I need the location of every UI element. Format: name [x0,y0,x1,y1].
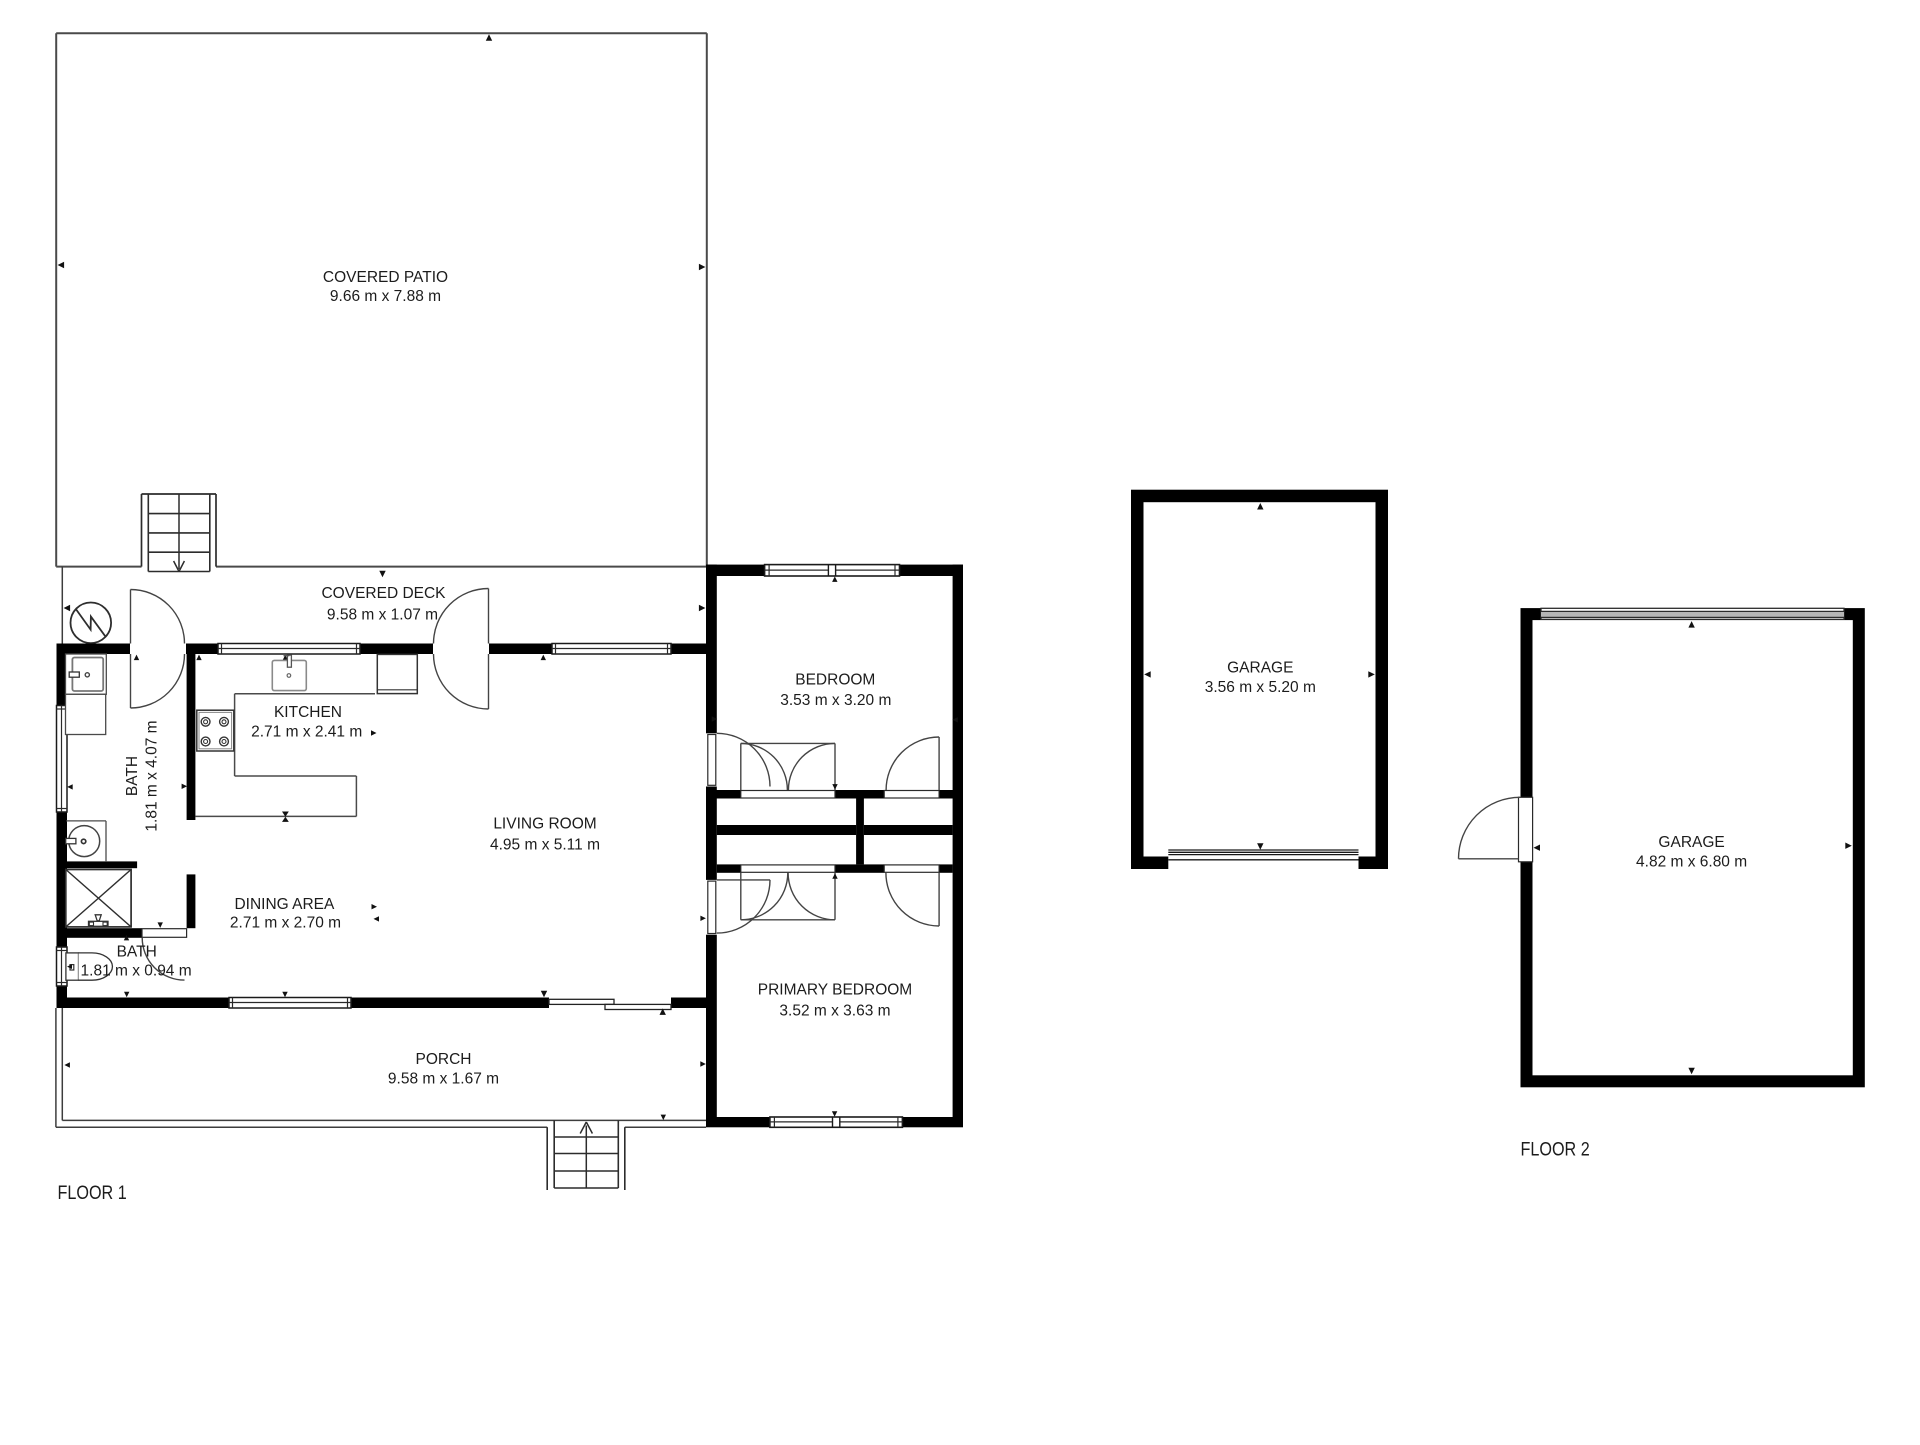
svg-text:PRIMARY BEDROOM: PRIMARY BEDROOM [758,982,912,999]
svg-text:BATH: BATH [117,944,157,961]
svg-text:FLOOR 2: FLOOR 2 [1521,1138,1590,1160]
svg-text:LIVING ROOM: LIVING ROOM [493,816,596,833]
svg-text:COVERED PATIO: COVERED PATIO [323,269,448,286]
svg-text:KITCHEN: KITCHEN [274,704,342,721]
svg-text:4.82 m x 6.80 m: 4.82 m x 6.80 m [1636,854,1747,871]
svg-text:GARAGE: GARAGE [1227,660,1293,677]
svg-text:2.71 m x 2.70 m: 2.71 m x 2.70 m [230,915,341,932]
svg-text:1.81 m x 4.07 m: 1.81 m x 4.07 m [143,720,160,831]
svg-text:FLOOR 1: FLOOR 1 [58,1182,127,1204]
svg-text:9.58 m x 1.67 m: 9.58 m x 1.67 m [388,1071,499,1088]
svg-text:BATH: BATH [124,756,141,796]
svg-text:PORCH: PORCH [416,1051,472,1068]
svg-text:3.53 m x 3.20 m: 3.53 m x 3.20 m [780,692,891,709]
svg-text:9.66 m x 7.88 m: 9.66 m x 7.88 m [330,288,441,305]
svg-text:BEDROOM: BEDROOM [795,671,875,688]
svg-text:GARAGE: GARAGE [1658,834,1724,851]
svg-text:9.58 m x 1.07 m: 9.58 m x 1.07 m [327,607,438,624]
svg-text:DINING AREA: DINING AREA [234,896,335,913]
svg-text:3.56 m x 5.20 m: 3.56 m x 5.20 m [1205,679,1316,696]
svg-text:1.81 m x 0.94 m: 1.81 m x 0.94 m [81,962,192,979]
svg-text:3.52 m x 3.63 m: 3.52 m x 3.63 m [779,1002,890,1019]
svg-text:COVERED DECK: COVERED DECK [321,585,446,602]
svg-text:2.71 m x 2.41 m: 2.71 m x 2.41 m [251,723,362,740]
svg-text:4.95 m x 5.11 m: 4.95 m x 5.11 m [490,836,600,853]
